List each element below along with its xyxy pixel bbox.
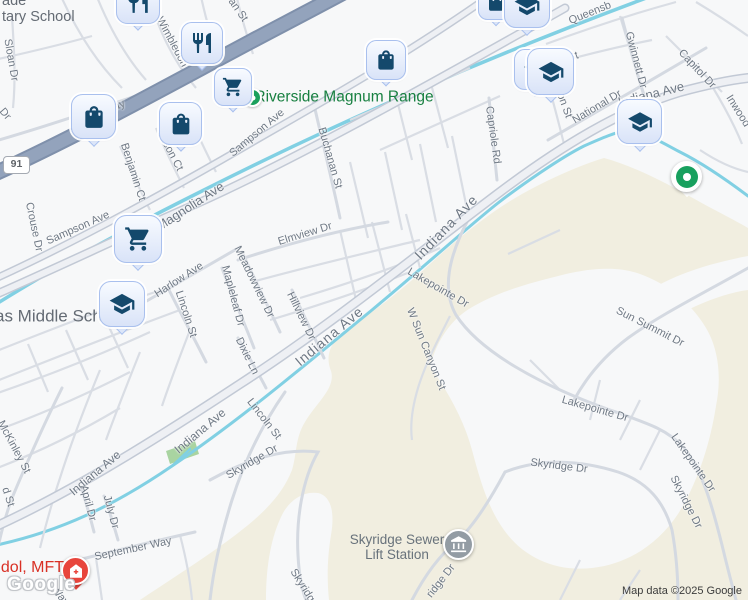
riverside-magnum-range-label[interactable]: Riverside Magnum Range xyxy=(254,88,433,105)
graduation-cap-icon xyxy=(537,58,564,85)
sewer-lift-station-label[interactable]: Skyridge SewerLift Station xyxy=(350,532,445,562)
restaurant-icon xyxy=(190,31,214,55)
pin-center-hole xyxy=(683,173,691,181)
school-pin[interactable] xyxy=(504,0,550,28)
graduation-cap-icon xyxy=(109,291,136,318)
mckinley-st-road xyxy=(0,388,62,556)
restaurant-pin[interactable] xyxy=(116,0,160,24)
shopping-bag-icon xyxy=(168,111,193,136)
graduation-cap-icon xyxy=(627,109,653,135)
school-pin[interactable] xyxy=(527,48,574,95)
school-pin[interactable] xyxy=(617,99,662,144)
shopping-bag-icon xyxy=(375,49,398,72)
shopping-cart-pin[interactable] xyxy=(114,215,162,263)
park-pin[interactable] xyxy=(671,161,702,192)
shopping-cart-icon xyxy=(222,76,244,98)
restaurant-icon xyxy=(125,0,151,15)
shopping-bag-icon xyxy=(81,104,107,130)
map-attribution: Map data ©2025 Google xyxy=(622,585,742,597)
map-canvas[interactable]: 91 Sloan DrDrGriffin WayWimbledonan StCr… xyxy=(0,0,748,600)
sewer-station-pin[interactable] xyxy=(443,529,474,560)
school-pin[interactable] xyxy=(99,281,145,327)
shopping-cart-icon xyxy=(124,225,152,253)
bank-icon xyxy=(449,535,468,554)
highway-91-badge: 91 xyxy=(3,156,30,174)
shopping-bag-pin[interactable] xyxy=(71,94,116,139)
google-watermark-logo: Google xyxy=(7,574,75,596)
graduation-cap-icon xyxy=(514,0,541,19)
restaurant-pin[interactable] xyxy=(181,22,223,64)
shopping-bag-pin[interactable] xyxy=(159,102,202,145)
elementary-school-label[interactable]: adetary School xyxy=(2,0,75,25)
shopping-cart-pin[interactable] xyxy=(214,68,252,106)
shopping-bag-pin[interactable] xyxy=(366,40,406,80)
